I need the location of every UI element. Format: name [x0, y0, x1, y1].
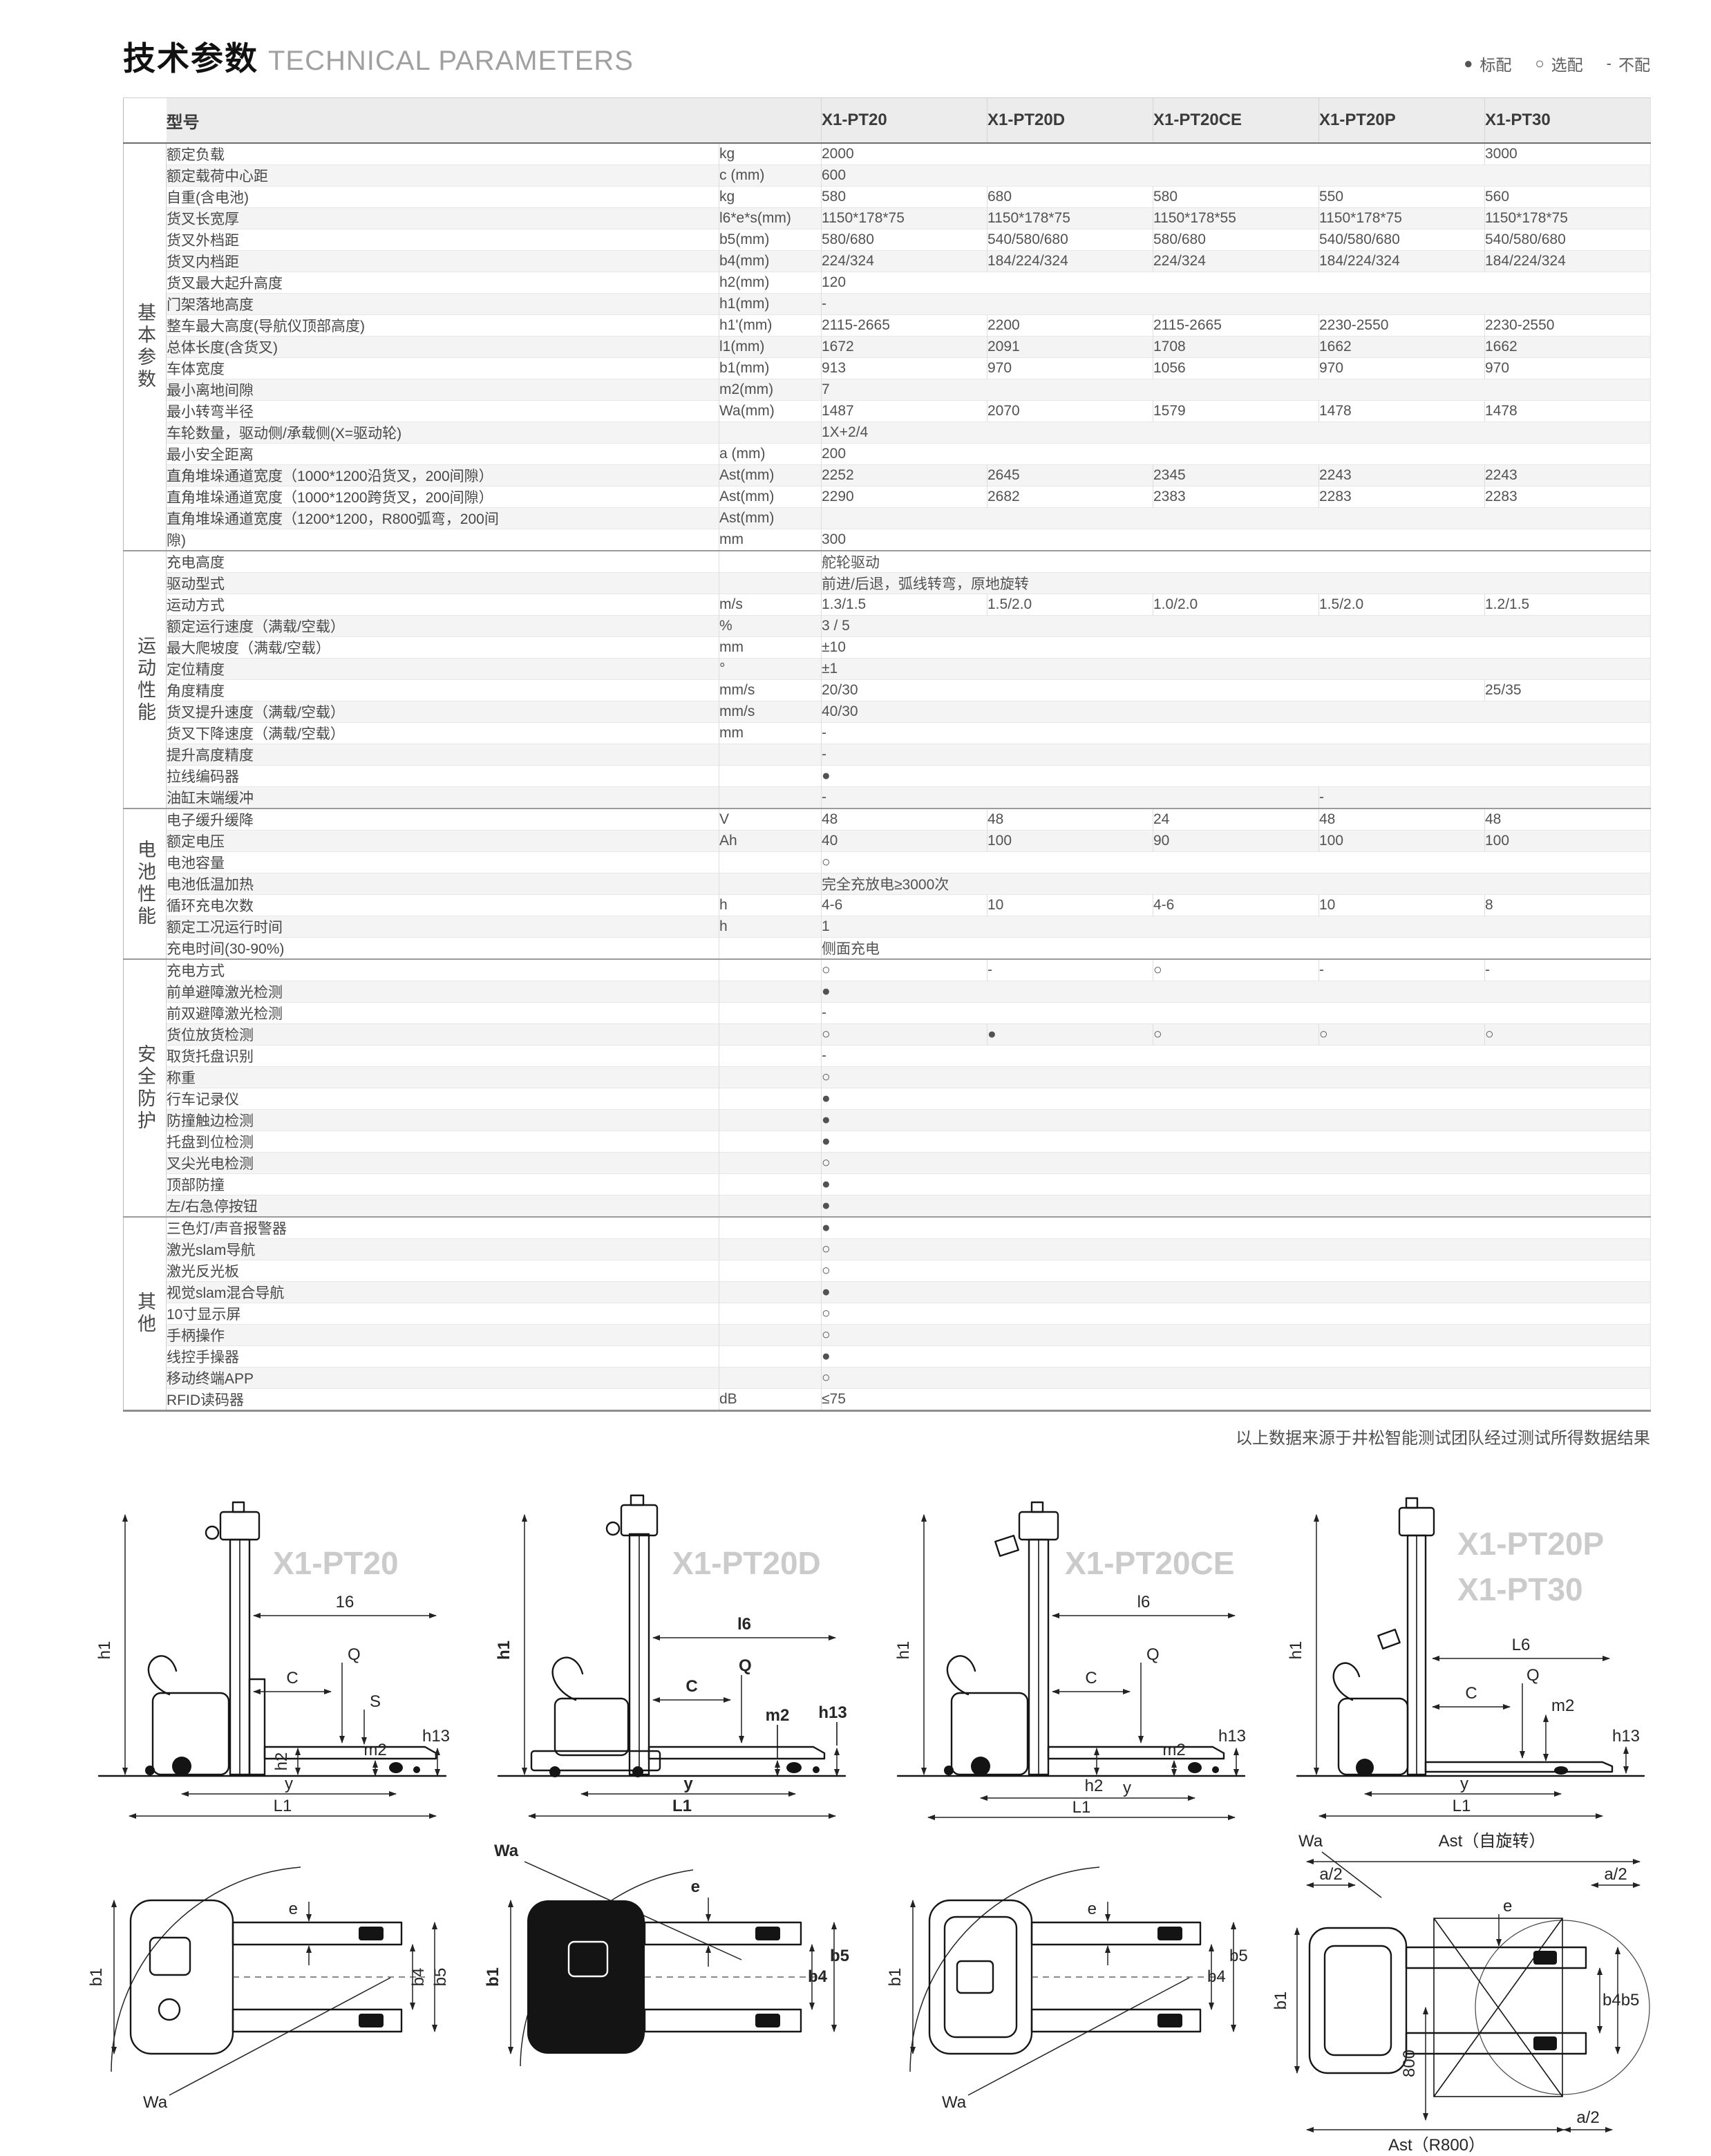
- spec-value: 300: [822, 529, 1651, 551]
- dim-h13: h13: [818, 1703, 847, 1722]
- spec-value: 580/680: [822, 229, 987, 251]
- spec-value: ○: [822, 1067, 1651, 1088]
- spec-value: 2230-2550: [1485, 315, 1651, 337]
- spec-value: 1478: [1319, 401, 1485, 422]
- spec-param-unit: [719, 1217, 822, 1239]
- spec-param-label: 定位精度: [167, 659, 719, 680]
- spec-row: 最大爬坡度（满载/空载）mm±10: [124, 637, 1651, 659]
- spec-param-unit: [719, 744, 822, 766]
- spec-value: 40/30: [822, 701, 1651, 723]
- spec-param-label: 最小离地间隙: [167, 379, 719, 401]
- spec-row: 前单避障激光检测●: [124, 981, 1651, 1003]
- spec-value: ●: [822, 1110, 1651, 1131]
- spec-row: 电池性能电子缓升缓降V4848244848: [124, 808, 1651, 831]
- spec-value: 1478: [1485, 401, 1651, 422]
- spec-row: 手柄操作○: [124, 1325, 1651, 1346]
- diagram-x1-pt20d-top-view: Wa b1 e b4 b5: [465, 1831, 852, 2128]
- spec-value: 1708: [1153, 337, 1319, 358]
- spec-row: 顶部防撞●: [124, 1174, 1651, 1195]
- spec-value: 1150*178*55: [1153, 208, 1319, 229]
- spec-value: ●: [822, 1088, 1651, 1110]
- spec-param-unit: [719, 1153, 822, 1174]
- dim-h1: h1: [95, 1641, 114, 1660]
- spec-param-label: 额定运行速度（满载/空载）: [167, 616, 719, 637]
- spec-value: ±1: [822, 659, 1651, 680]
- spec-table: 型号 X1-PT20 X1-PT20D X1-PT20CE X1-PT20P X…: [123, 97, 1651, 1412]
- section-group-label: 基本参数: [124, 143, 167, 551]
- spec-param-label: 移动终端APP: [167, 1368, 719, 1389]
- spec-row: 提升高度精度-: [124, 744, 1651, 766]
- spec-value: 1150*178*75: [1319, 208, 1485, 229]
- spec-value: 1.0/2.0: [1153, 594, 1319, 616]
- spec-row: 直角堆垛通道宽度（1200*1200，R800弧弯，200间Ast(mm): [124, 508, 1651, 529]
- diagram-x1-pt20-top-view: Wa b1 e b4 b5: [66, 1831, 453, 2128]
- dim-l1: L1: [274, 1797, 292, 1815]
- spec-value: ○: [822, 852, 1651, 873]
- spec-param-label: 货叉内档距: [167, 251, 719, 272]
- spec-param-unit: h1'(mm): [719, 315, 822, 337]
- spec-value: 224/324: [822, 251, 987, 272]
- spec-row: 运动方式m/s1.3/1.51.5/2.01.0/2.01.5/2.01.2/1…: [124, 594, 1651, 616]
- spec-param-unit: [719, 1282, 822, 1303]
- spec-row: 额定工况运行时间h1: [124, 916, 1651, 938]
- spec-value: 2115-2665: [1153, 315, 1319, 337]
- dim-e: e: [289, 1900, 298, 1918]
- dim-b1: b1: [1272, 1992, 1290, 2010]
- legend: ● 标配 ○ 选配 - 不配: [1464, 52, 1650, 79]
- spec-row: 激光反光板○: [124, 1260, 1651, 1282]
- spec-value: 1.5/2.0: [1319, 594, 1485, 616]
- spec-value: 7: [822, 379, 1651, 401]
- dim-m2: m2: [1162, 1741, 1185, 1759]
- spec-param-label: 直角堆垛通道宽度（1000*1200跨货叉，200间隙）: [167, 486, 719, 508]
- dim-b4b5: b4b5: [1603, 1991, 1639, 2010]
- spec-row: 隙)mm300: [124, 529, 1651, 551]
- spec-param-label: 电池低温加热: [167, 873, 719, 895]
- spec-row: 额定电压Ah4010090100100: [124, 831, 1651, 852]
- spec-param-unit: [719, 573, 822, 594]
- spec-value: 前进/后退，弧线转弯，原地旋转: [822, 573, 1651, 594]
- dim-c: C: [1085, 1669, 1097, 1687]
- spec-value: 600: [822, 165, 1651, 187]
- spec-value: ●: [822, 1217, 1651, 1239]
- spec-param-label: 线控手操器: [167, 1346, 719, 1368]
- spec-row: 防撞触边检测●: [124, 1110, 1651, 1131]
- spec-param-unit: V: [719, 808, 822, 831]
- spec-value: ●: [822, 1346, 1651, 1368]
- spec-row: 货叉长宽厚l6*e*s(mm)1150*178*751150*178*75115…: [124, 208, 1651, 229]
- dim-h1: h1: [495, 1640, 513, 1660]
- dim-y: y: [683, 1775, 693, 1793]
- spec-value: ○: [822, 1368, 1651, 1389]
- dim-b1: b1: [886, 1968, 905, 1987]
- spec-param-label: 货叉长宽厚: [167, 208, 719, 229]
- diagram-model-watermark: X1-PT20CE: [1065, 1545, 1234, 1581]
- spec-value: 120: [822, 272, 1651, 294]
- spec-value: [1485, 787, 1651, 809]
- spec-row: 线控手操器●: [124, 1346, 1651, 1368]
- dash-icon: -: [1607, 55, 1611, 73]
- spec-value: 1579: [1153, 401, 1319, 422]
- spec-param-unit: [719, 873, 822, 895]
- spec-row: 前双避障激光检测-: [124, 1003, 1651, 1024]
- spec-param-label: 叉尖光电检测: [167, 1153, 719, 1174]
- spec-param-label: 货位放货检测: [167, 1024, 719, 1046]
- spec-param-unit: [719, 766, 822, 787]
- spec-value: 2283: [1319, 486, 1485, 508]
- spec-value: 1662: [1485, 337, 1651, 358]
- spec-value: 2070: [987, 401, 1153, 422]
- spec-table-header-row: 型号 X1-PT20 X1-PT20D X1-PT20CE X1-PT20P X…: [124, 98, 1651, 144]
- dim-wa: Wa: [942, 2093, 967, 2112]
- spec-row: 直角堆垛通道宽度（1000*1200跨货叉，200间隙）Ast(mm)22902…: [124, 486, 1651, 508]
- spec-value: 560: [1485, 187, 1651, 208]
- spec-param-unit: mm: [719, 637, 822, 659]
- spec-param-unit: [719, 1346, 822, 1368]
- spec-param-label: 提升高度精度: [167, 744, 719, 766]
- spec-param-label: 前双避障激光检测: [167, 1003, 719, 1024]
- spec-value: 90: [1153, 831, 1319, 852]
- spec-param-label: 额定负载: [167, 143, 719, 165]
- spec-param-unit: mm: [719, 529, 822, 551]
- spec-param-label: 激光反光板: [167, 1260, 719, 1282]
- spec-param-unit: kg: [719, 143, 822, 165]
- spec-value: 100: [987, 831, 1153, 852]
- spec-value: 970: [987, 358, 1153, 379]
- spec-param-label: 最小转弯半径: [167, 401, 719, 422]
- spec-value: 2200: [987, 315, 1153, 337]
- spec-value: ○: [822, 1303, 1651, 1325]
- diagram-x1-pt20p-side-view: X1-PT20P X1-PT30 h1 L6 C Q m2 h13: [1264, 1472, 1651, 1831]
- diagram-model-watermark-2: X1-PT30: [1457, 1571, 1583, 1607]
- spec-value: 2243: [1319, 465, 1485, 486]
- spec-param-unit: [719, 1174, 822, 1195]
- spec-param-unit: c (mm): [719, 165, 822, 187]
- spec-param-unit: mm: [719, 723, 822, 744]
- spec-value: 550: [1319, 187, 1485, 208]
- diagram-x1-pt20-side-view: X1-PT20 h1 16 C Q S h2: [66, 1472, 453, 1831]
- spec-row: 其他三色灯/声音报警器●: [124, 1217, 1651, 1239]
- spec-value: 2383: [1153, 486, 1319, 508]
- spec-value: 24: [1153, 808, 1319, 831]
- spec-value: 48: [987, 808, 1153, 831]
- legend-standard-label: 标配: [1480, 52, 1511, 75]
- spec-row: 总体长度(含货叉)l1(mm)16722091170816621662: [124, 337, 1651, 358]
- spec-value: 1662: [1319, 337, 1485, 358]
- spec-value: 540/580/680: [1485, 229, 1651, 251]
- spec-row: 车体宽度b1(mm)9139701056970970: [124, 358, 1651, 379]
- dim-h2: h2: [1085, 1777, 1104, 1795]
- spec-param-label: 直角堆垛通道宽度（1000*1200沿货叉，200间隙）: [167, 465, 719, 486]
- dim-b1: b1: [484, 1967, 502, 1987]
- spec-value: -: [822, 1046, 1651, 1067]
- legend-standard: ● 标配: [1464, 52, 1511, 75]
- spec-value: 184/224/324: [1485, 251, 1651, 272]
- spec-value: -: [822, 1003, 1651, 1024]
- spec-value: 2682: [987, 486, 1153, 508]
- spec-param-unit: [719, 981, 822, 1003]
- spec-row: 取货托盘识别-: [124, 1046, 1651, 1067]
- model-col-x1-pt30: X1-PT30: [1485, 98, 1651, 144]
- section-group-label: 其他: [124, 1217, 167, 1411]
- spec-row: 货位放货检测○●○○○: [124, 1024, 1651, 1046]
- dim-b1: b1: [87, 1968, 106, 1987]
- spec-param-label: 充电方式: [167, 959, 719, 981]
- spec-value: 1487: [822, 401, 987, 422]
- diagram-group-x1-pt20ce: X1-PT20CE h1 l6 C Q h2 m2: [864, 1472, 1251, 2156]
- spec-value: 680: [987, 187, 1153, 208]
- spec-value: 1: [822, 916, 1651, 938]
- dim-c: C: [1465, 1684, 1477, 1703]
- spec-row: 最小安全距离a (mm)200: [124, 444, 1651, 465]
- spec-value: 580: [1153, 187, 1319, 208]
- dim-800: 800: [1400, 2050, 1419, 2077]
- spec-param-unit: [719, 959, 822, 981]
- spec-value: 1.5/2.0: [987, 594, 1153, 616]
- spec-row: 车轮数量，驱动侧/承载侧(X=驱动轮)1X+2/4: [124, 422, 1651, 444]
- spec-row: 最小离地间隙m2(mm)7: [124, 379, 1651, 401]
- spec-value: ○: [1153, 1024, 1319, 1046]
- spec-param-unit: l6*e*s(mm): [719, 208, 822, 229]
- spec-row: 货叉内档距b4(mm)224/324184/224/324224/324184/…: [124, 251, 1651, 272]
- spec-value: 2345: [1153, 465, 1319, 486]
- spec-value: -: [822, 744, 1651, 766]
- spec-param-label: 油缸末端缓冲: [167, 787, 719, 809]
- spec-value: 48: [1319, 808, 1485, 831]
- dim-a2-bottom: a/2: [1576, 2108, 1599, 2127]
- spec-value: ●: [822, 766, 1651, 787]
- spec-param-label: 车轮数量，驱动侧/承载侧(X=驱动轮): [167, 422, 719, 444]
- spec-value: 2252: [822, 465, 987, 486]
- spec-value: 540/580/680: [1319, 229, 1485, 251]
- spec-row: 电池容量○: [124, 852, 1651, 873]
- diagram-x1-pt20ce-top-view: Wa b1 e b4 b5: [864, 1831, 1251, 2128]
- spec-row: 移动终端APP○: [124, 1368, 1651, 1389]
- spec-value: ●: [822, 1131, 1651, 1153]
- spec-param-unit: Ah: [719, 831, 822, 852]
- spec-param-unit: b5(mm): [719, 229, 822, 251]
- dim-y: y: [1123, 1779, 1131, 1797]
- spec-value: ●: [987, 1024, 1153, 1046]
- section-group-label: 运动性能: [124, 551, 167, 808]
- spec-row: 激光slam导航○: [124, 1239, 1651, 1260]
- spec-value: -: [822, 294, 1651, 315]
- dim-ast-self-rotate: Ast（自旋转）: [1439, 1832, 1546, 1851]
- dim-wa: Wa: [143, 2093, 168, 2112]
- spec-value: 184/224/324: [1319, 251, 1485, 272]
- spec-param-unit: [719, 1303, 822, 1325]
- dim-m2: m2: [766, 1706, 790, 1725]
- spec-row: RFID读码器dB≤75: [124, 1389, 1651, 1411]
- dim-l1: L1: [672, 1797, 692, 1815]
- spec-value: 1.2/1.5: [1485, 594, 1651, 616]
- spec-param-unit: Wa(mm): [719, 401, 822, 422]
- spec-param-unit: l1(mm): [719, 337, 822, 358]
- dim-e: e: [1088, 1900, 1097, 1918]
- dim-b4: b4: [1207, 1967, 1226, 1986]
- spec-row: 安全防护充电方式○-○--: [124, 959, 1651, 981]
- model-col-x1-pt20ce: X1-PT20CE: [1153, 98, 1319, 144]
- dim-q: Q: [1526, 1666, 1540, 1685]
- spec-param-unit: m2(mm): [719, 379, 822, 401]
- dim-ast-r800: Ast（R800）: [1388, 2136, 1485, 2155]
- dim-b5: b5: [1229, 1947, 1248, 1965]
- spec-row: 货叉提升速度（满载/空载）mm/s40/30: [124, 701, 1651, 723]
- spec-param-unit: h2(mm): [719, 272, 822, 294]
- spec-value: ●: [822, 1282, 1651, 1303]
- dim-h1: h1: [894, 1641, 913, 1660]
- spec-value: ●: [822, 981, 1651, 1003]
- spec-value: 1672: [822, 337, 987, 358]
- spec-value: ±10: [822, 637, 1651, 659]
- spec-param-label: 取货托盘识别: [167, 1046, 719, 1067]
- model-col-x1-pt20d: X1-PT20D: [987, 98, 1153, 144]
- spec-row: 油缸末端缓冲--: [124, 787, 1651, 809]
- spec-row: 门架落地高度h1(mm)-: [124, 294, 1651, 315]
- spec-param-label: 额定工况运行时间: [167, 916, 719, 938]
- filled-circle-icon: ●: [1464, 55, 1473, 73]
- spec-value: 完全充放电≥3000次: [822, 873, 1651, 895]
- spec-value: 1.3/1.5: [822, 594, 987, 616]
- spec-value: 10: [1319, 895, 1485, 916]
- spec-value: 舵轮驱动: [822, 551, 1651, 573]
- spec-value: -: [822, 723, 1651, 744]
- page-title-zh: 技术参数: [123, 40, 258, 77]
- spec-value: 540/580/680: [987, 229, 1153, 251]
- diagram-model-watermark: X1-PT20: [273, 1545, 399, 1581]
- spec-row: 叉尖光电检测○: [124, 1153, 1651, 1174]
- spec-param-unit: dB: [719, 1389, 822, 1411]
- model-col-x1-pt20: X1-PT20: [822, 98, 987, 144]
- spec-param-label: 运动方式: [167, 594, 719, 616]
- dim-y: y: [1460, 1775, 1468, 1793]
- spec-param-label: 额定电压: [167, 831, 719, 852]
- spec-param-unit: [719, 1368, 822, 1389]
- spec-row: 最小转弯半径Wa(mm)14872070157914781478: [124, 401, 1651, 422]
- diagram-group-x1-pt20p-pt30: X1-PT20P X1-PT30 h1 L6 C Q m2 h13: [1264, 1472, 1651, 2156]
- dim-b5: b5: [830, 1947, 849, 1965]
- spec-value: ○: [822, 1024, 987, 1046]
- spec-value: 2000: [822, 143, 1485, 165]
- hollow-circle-icon: ○: [1535, 55, 1544, 73]
- spec-param-label: 10寸显示屏: [167, 1303, 719, 1325]
- spec-value: 2091: [987, 337, 1153, 358]
- spec-value: 970: [1485, 358, 1651, 379]
- spec-row: 10寸显示屏○: [124, 1303, 1651, 1325]
- spec-row: 电池低温加热完全充放电≥3000次: [124, 873, 1651, 895]
- spec-row: 称重○: [124, 1067, 1651, 1088]
- spec-param-unit: kg: [719, 187, 822, 208]
- spec-value: ○: [1153, 959, 1319, 981]
- spec-value: 2645: [987, 465, 1153, 486]
- spec-value: ●: [822, 1195, 1651, 1218]
- spec-value: 1150*178*75: [822, 208, 987, 229]
- spec-value: ○: [822, 1239, 1651, 1260]
- spec-param-unit: %: [719, 616, 822, 637]
- spec-param-label: 货叉下降速度（满载/空载）: [167, 723, 719, 744]
- spec-param-unit: [719, 1239, 822, 1260]
- section-group-label: 安全防护: [124, 959, 167, 1217]
- spec-row: 左/右急停按钮●: [124, 1195, 1651, 1218]
- spec-param-label: 总体长度(含货叉): [167, 337, 719, 358]
- spec-param-label: 行车记录仪: [167, 1088, 719, 1110]
- dim-h2: h2: [272, 1752, 291, 1771]
- spec-param-unit: Ast(mm): [719, 486, 822, 508]
- spec-param-unit: [719, 551, 822, 573]
- spec-param-label: 充电高度: [167, 551, 719, 573]
- page-header: 技术参数TECHNICAL PARAMETERS ● 标配 ○ 选配 - 不配: [123, 32, 1650, 79]
- spec-row: 角度精度mm/s20/3025/35: [124, 680, 1651, 701]
- spec-value: -: [1485, 959, 1651, 981]
- diagram-group-x1-pt20: X1-PT20 h1 16 C Q S h2: [66, 1472, 453, 2156]
- legend-optional-label: 选配: [1551, 52, 1583, 75]
- spec-param-label: 最大爬坡度（满载/空载）: [167, 637, 719, 659]
- spec-param-label: RFID读码器: [167, 1389, 719, 1411]
- model-col-x1-pt20p: X1-PT20P: [1319, 98, 1485, 144]
- spec-value: ○: [822, 1325, 1651, 1346]
- spec-value: 48: [822, 808, 987, 831]
- dim-m2: m2: [1551, 1696, 1574, 1715]
- spec-param-unit: [719, 852, 822, 873]
- spec-param-unit: [719, 1110, 822, 1131]
- spec-value: 48: [1485, 808, 1651, 831]
- dim-wa: Wa: [1298, 1832, 1323, 1851]
- spec-value: ○: [822, 1260, 1651, 1282]
- spec-value: 224/324: [1153, 251, 1319, 272]
- spec-param-unit: mm/s: [719, 701, 822, 723]
- spec-param-label: 门架落地高度: [167, 294, 719, 315]
- spec-param-unit: [719, 787, 822, 809]
- spec-param-label: 三色灯/声音报警器: [167, 1217, 719, 1239]
- spec-param-unit: b1(mm): [719, 358, 822, 379]
- dim-h1: h1: [1287, 1641, 1305, 1660]
- spec-param-unit: h: [719, 895, 822, 916]
- spec-param-label: 循环充电次数: [167, 895, 719, 916]
- spec-param-unit: Ast(mm): [719, 465, 822, 486]
- spec-value: ○: [822, 959, 987, 981]
- spec-value: [822, 508, 1651, 529]
- spec-value: 2230-2550: [1319, 315, 1485, 337]
- spec-param-label: 隙): [167, 529, 719, 551]
- model-header-label: 型号: [167, 98, 822, 144]
- spec-param-label: 视觉slam混合导航: [167, 1282, 719, 1303]
- spec-param-label: 直角堆垛通道宽度（1200*1200，R800弧弯，200间: [167, 508, 719, 529]
- spec-param-unit: [719, 1088, 822, 1110]
- spec-param-unit: [719, 422, 822, 444]
- dim-a2-left: a/2: [1319, 1865, 1342, 1884]
- dim-a2-right: a/2: [1604, 1865, 1627, 1884]
- spec-value: 2115-2665: [822, 315, 987, 337]
- spec-param-label: 额定载荷中心距: [167, 165, 719, 187]
- diagram-model-watermark: X1-PT20P: [1457, 1526, 1604, 1562]
- spec-value: ○: [1319, 1024, 1485, 1046]
- page-title: 技术参数TECHNICAL PARAMETERS: [123, 32, 634, 79]
- spec-value: 1X+2/4: [822, 422, 1651, 444]
- spec-row: 拉线编码器●: [124, 766, 1651, 787]
- spec-param-unit: h1(mm): [719, 294, 822, 315]
- spec-param-unit: [719, 1046, 822, 1067]
- diagram-x1-pt20p-top-view: Wa Ast（自旋转） a/2 a/2 e b1 b4b5: [1264, 1831, 1651, 2156]
- dim-e: e: [1503, 1897, 1512, 1916]
- spec-row: 货叉最大起升高度h2(mm)120: [124, 272, 1651, 294]
- dim-h13: h13: [1612, 1727, 1640, 1746]
- spec-param-unit: [719, 938, 822, 960]
- spec-value: 2283: [1485, 486, 1651, 508]
- spec-value: 1150*178*75: [1485, 208, 1651, 229]
- spec-value: -: [1319, 959, 1485, 981]
- dim-m2: m2: [363, 1741, 386, 1759]
- spec-param-label: 货叉外档距: [167, 229, 719, 251]
